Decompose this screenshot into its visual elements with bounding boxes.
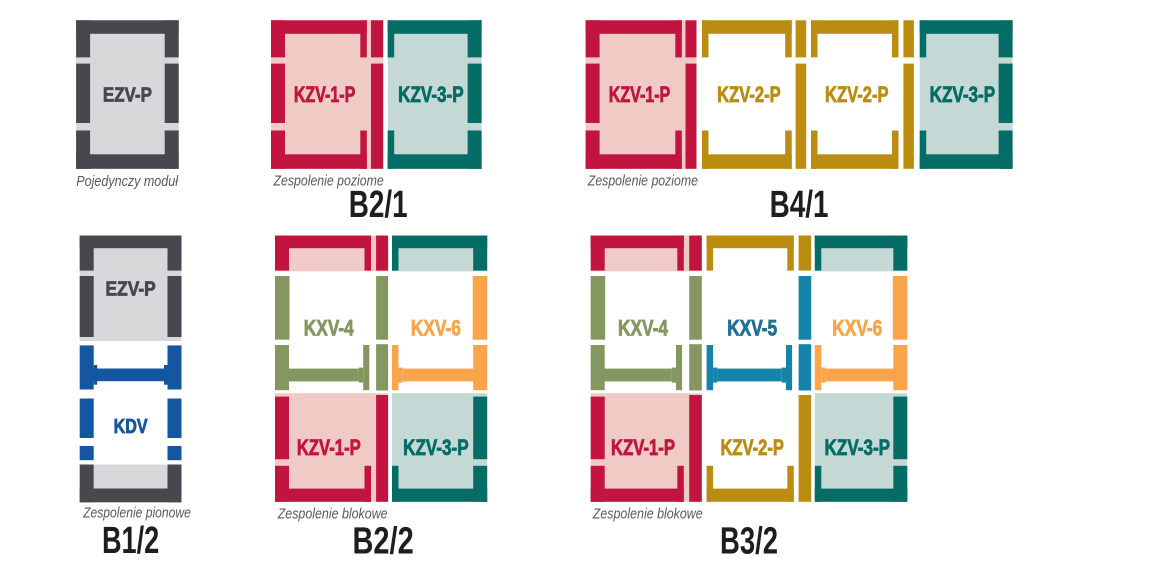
svg-text:KZV-2-P: KZV-2-P bbox=[720, 435, 784, 460]
svg-text:KXV-6: KXV-6 bbox=[832, 316, 882, 341]
svg-text:KZV-1-P: KZV-1-P bbox=[294, 82, 356, 107]
svg-text:Zespolenie poziome: Zespolenie poziome bbox=[587, 173, 698, 189]
svg-text:KXV-6: KXV-6 bbox=[411, 316, 461, 341]
svg-text:B2/1: B2/1 bbox=[349, 184, 408, 226]
svg-text:KZV-1-P: KZV-1-P bbox=[297, 435, 361, 460]
svg-text:B1/2: B1/2 bbox=[102, 520, 159, 562]
svg-text:Zespolenie blokowe: Zespolenie blokowe bbox=[592, 506, 703, 522]
svg-text:B2/2: B2/2 bbox=[353, 521, 414, 563]
svg-text:KZV-2-P: KZV-2-P bbox=[825, 82, 889, 107]
svg-text:KZV-3-P: KZV-3-P bbox=[403, 435, 469, 460]
svg-text:KZV-1-P: KZV-1-P bbox=[609, 82, 671, 107]
svg-text:EZV-P: EZV-P bbox=[106, 277, 156, 300]
svg-text:EZV-P: EZV-P bbox=[103, 83, 152, 106]
svg-text:KXV-4: KXV-4 bbox=[618, 316, 669, 341]
svg-text:Pojedynczy moduł: Pojedynczy moduł bbox=[76, 174, 178, 190]
svg-text:KZV-3-P: KZV-3-P bbox=[930, 82, 996, 107]
svg-text:B4/1: B4/1 bbox=[770, 184, 829, 226]
svg-text:KDV: KDV bbox=[114, 415, 148, 438]
svg-text:KZV-2-P: KZV-2-P bbox=[717, 82, 781, 107]
svg-text:B3/2: B3/2 bbox=[720, 521, 778, 563]
svg-text:KZV-3-P: KZV-3-P bbox=[398, 82, 464, 107]
svg-text:KZV-3-P: KZV-3-P bbox=[825, 435, 891, 460]
svg-text:KXV-5: KXV-5 bbox=[727, 316, 777, 341]
svg-text:KXV-4: KXV-4 bbox=[304, 316, 355, 341]
svg-text:KZV-1-P: KZV-1-P bbox=[611, 435, 675, 460]
